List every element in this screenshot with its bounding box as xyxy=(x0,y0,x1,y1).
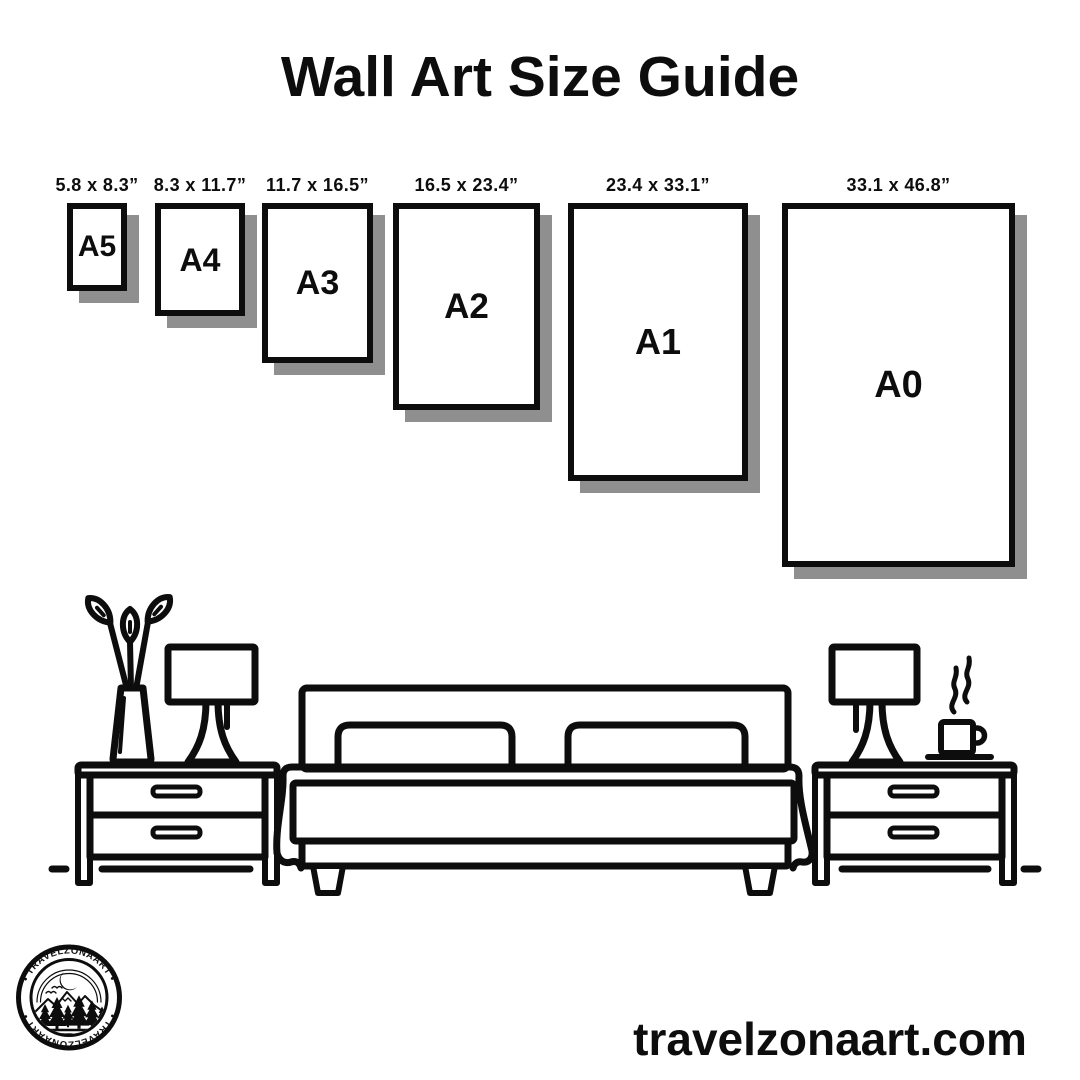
size-frame-a2: 16.5 x 23.4” A2 xyxy=(393,203,540,410)
size-letter: A0 xyxy=(874,366,923,404)
size-dimensions-label: 8.3 x 11.7” xyxy=(154,175,246,196)
website-url: travelzonaart.com xyxy=(633,1012,1027,1066)
size-frame-a3: 11.7 x 16.5” A3 xyxy=(262,203,373,363)
paper-a2: A2 xyxy=(393,203,540,410)
size-letter: A1 xyxy=(635,324,681,360)
paper-a3: A3 xyxy=(262,203,373,363)
size-letter: A2 xyxy=(444,289,489,324)
paper-a5: A5 xyxy=(67,203,127,291)
coffee-cup-icon xyxy=(928,658,991,757)
nightstand-icon xyxy=(52,765,277,883)
size-dimensions-label: 16.5 x 23.4” xyxy=(415,175,519,196)
table-lamp-icon xyxy=(168,647,255,762)
size-letter: A3 xyxy=(296,266,339,300)
page-title: Wall Art Size Guide xyxy=(0,44,1080,110)
size-frame-a5: 5.8 x 8.3” A5 xyxy=(67,203,127,291)
size-letter: A4 xyxy=(180,244,221,276)
brand-logo: • TRAVELZONAART • • TRAVELZONAART • xyxy=(12,938,128,1054)
paper-a1: A1 xyxy=(568,203,748,481)
nightstand-icon xyxy=(815,765,1038,883)
size-letter: A5 xyxy=(78,232,116,262)
size-frame-a4: 8.3 x 11.7” A4 xyxy=(155,203,245,316)
poster: Wall Art Size Guide 5.8 x 8.3” A5 8.3 x … xyxy=(0,0,1080,1080)
double-bed-icon xyxy=(277,688,812,893)
size-frame-a1: 23.4 x 33.1” A1 xyxy=(568,203,748,481)
size-dimensions-label: 33.1 x 46.8” xyxy=(847,175,951,196)
size-dimensions-label: 11.7 x 16.5” xyxy=(266,175,369,196)
size-frame-a0: 33.1 x 46.8” A0 xyxy=(782,203,1015,567)
plant-vase-icon xyxy=(83,592,175,762)
size-dimensions-label: 23.4 x 33.1” xyxy=(606,175,710,196)
paper-a4: A4 xyxy=(155,203,245,316)
size-dimensions-label: 5.8 x 8.3” xyxy=(55,175,138,196)
paper-a0: A0 xyxy=(782,203,1015,567)
bedroom-scene xyxy=(0,585,1080,910)
table-lamp-icon xyxy=(832,647,917,762)
